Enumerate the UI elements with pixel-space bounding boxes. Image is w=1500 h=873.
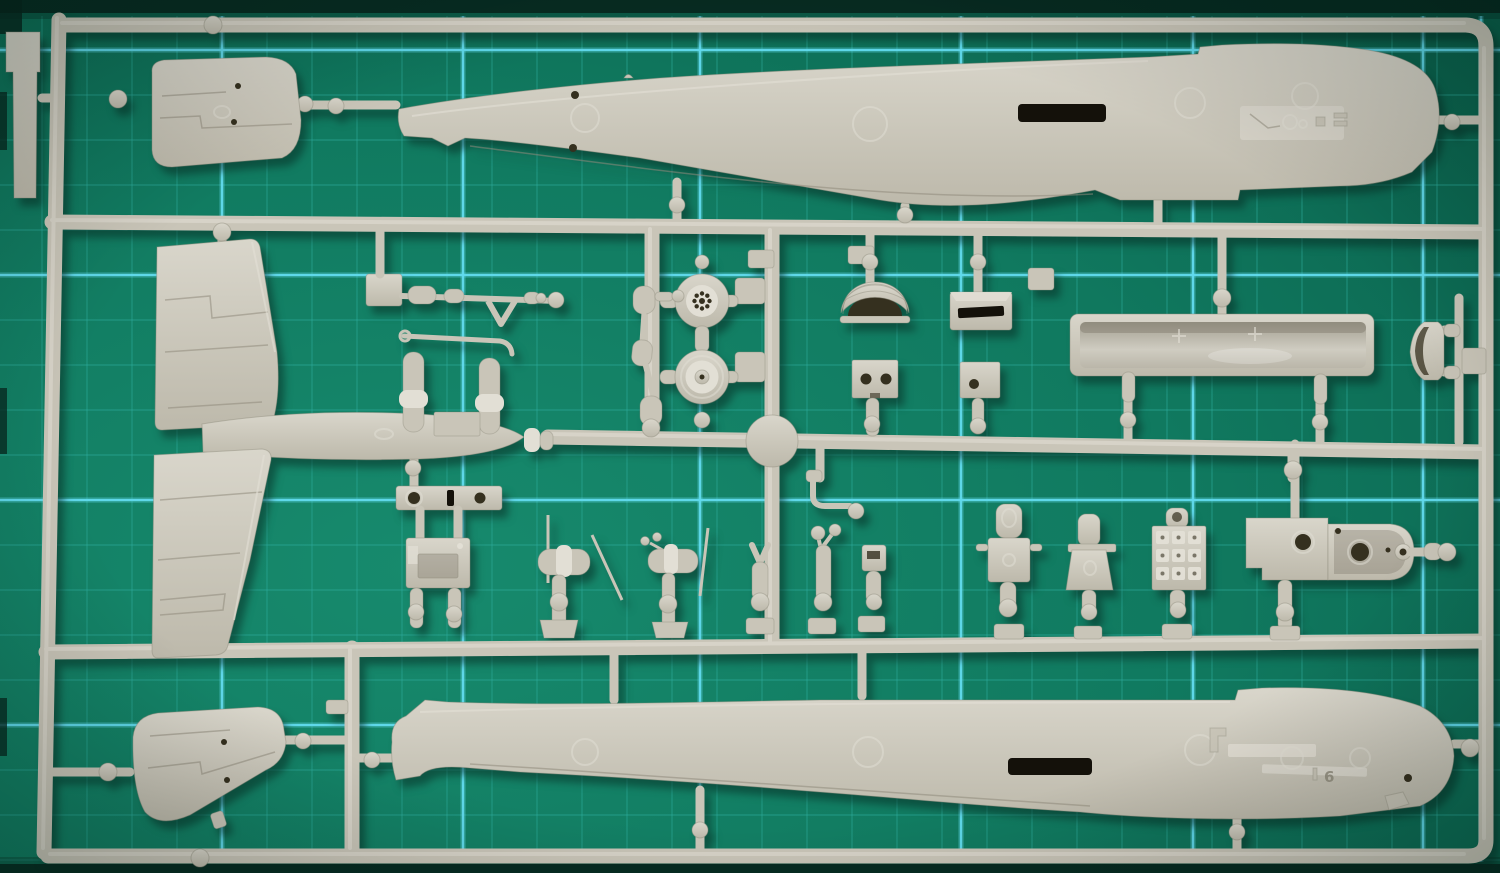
photo-stage: 6 (0, 0, 1500, 873)
sprue-photo: 6 (0, 0, 1500, 873)
photo-vignette (0, 0, 1500, 873)
